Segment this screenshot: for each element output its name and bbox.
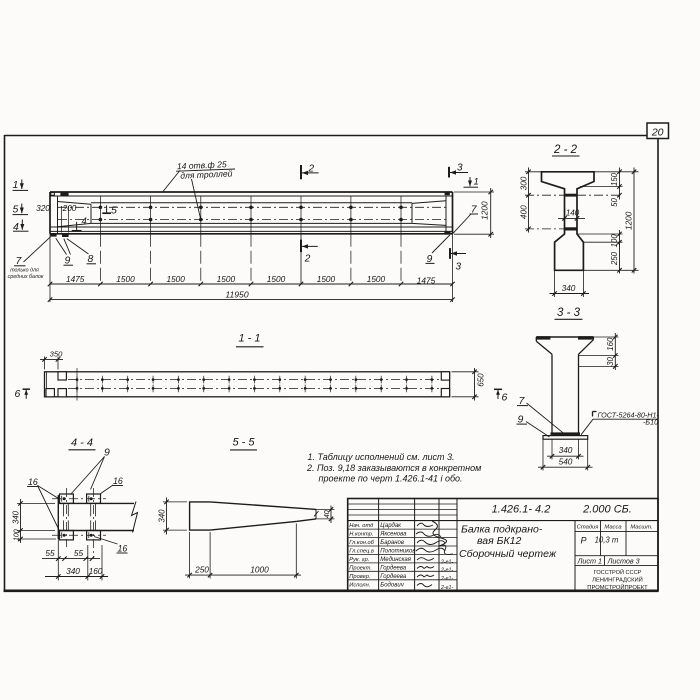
svg-text:540: 540 <box>559 457 573 467</box>
svg-text:40: 40 <box>324 510 331 518</box>
svg-text:Гл.кон.об: Гл.кон.об <box>349 540 374 546</box>
svg-text:Гордеева: Гордеева <box>380 574 407 580</box>
svg-text:350: 350 <box>50 350 63 359</box>
svg-text:вая БК12: вая БК12 <box>477 535 521 547</box>
svg-text:1500: 1500 <box>367 274 386 284</box>
svg-text:160: 160 <box>89 566 103 576</box>
svg-text:340: 340 <box>562 283 576 293</box>
svg-text:1500: 1500 <box>116 274 135 284</box>
svg-text:16: 16 <box>118 544 128 554</box>
svg-text:1.426.1- 4.2: 1.426.1- 4.2 <box>492 503 551 515</box>
svg-text:1 - 1: 1 - 1 <box>238 333 260 345</box>
svg-text:Масса: Масса <box>604 524 622 530</box>
svg-text:3: 3 <box>456 262 462 273</box>
svg-text:1: 1 <box>13 179 19 191</box>
svg-text:6: 6 <box>15 388 21 400</box>
svg-text:2.000 СБ.: 2.000 СБ. <box>582 503 632 515</box>
svg-text:160: 160 <box>606 337 615 351</box>
svg-text:4 - 4: 4 - 4 <box>71 437 93 449</box>
svg-text:50: 50 <box>610 198 619 207</box>
svg-text:Провер.: Провер. <box>349 574 370 580</box>
svg-text:1475: 1475 <box>417 275 436 285</box>
svg-text:5: 5 <box>13 204 19 216</box>
svg-text:2: 2 <box>308 163 315 174</box>
svg-text:Рук. гр.: Рук. гр. <box>349 557 369 563</box>
svg-text:3: 3 <box>457 162 463 173</box>
svg-text:Цардак: Цардак <box>380 523 402 529</box>
svg-text:Проект.: Проект. <box>349 565 372 571</box>
svg-text:1500: 1500 <box>217 274 236 284</box>
svg-text:20: 20 <box>651 126 664 138</box>
svg-text:2-е1-: 2-е1- <box>440 585 453 591</box>
svg-text:100: 100 <box>13 529 20 541</box>
svg-text:Исполн.: Исполн. <box>349 583 370 589</box>
svg-text:4: 4 <box>82 216 87 227</box>
svg-text:1500: 1500 <box>267 274 286 284</box>
svg-text:Масшт.: Масшт. <box>630 524 652 530</box>
svg-text:Стадия: Стадия <box>577 524 599 530</box>
svg-text:400: 400 <box>518 205 528 219</box>
svg-text:2. Поз. 9,18 заказываются в ко: 2. Поз. 9,18 заказываются в конкретном <box>306 463 481 473</box>
svg-text:2-е1-: 2-е1- <box>440 559 453 565</box>
svg-text:1. Таблицу исполнений см. лис: 1. Таблицу исполнений см. лист 3. <box>308 452 455 462</box>
svg-text:340: 340 <box>157 509 166 523</box>
svg-text:ЛЕНИНГРАДСКИЙ: ЛЕНИНГРАДСКИЙ <box>592 576 643 584</box>
svg-text:Балка подкрано-: Балка подкрано- <box>461 523 543 535</box>
svg-text:650: 650 <box>476 373 485 387</box>
svg-text:1475: 1475 <box>66 274 85 284</box>
svg-text:340: 340 <box>11 510 20 524</box>
svg-text:Гл.спец.в: Гл.спец.в <box>349 549 374 555</box>
svg-text:100: 100 <box>610 234 619 248</box>
svg-text:5 - 5: 5 - 5 <box>232 437 255 449</box>
svg-text:Баранов: Баранов <box>380 540 404 546</box>
svg-text:1200: 1200 <box>624 211 634 230</box>
svg-text:проекте по черт 1.426.1-41 i: проекте по черт 1.426.1-41 i обо. <box>319 474 463 484</box>
svg-text:10,3 т: 10,3 т <box>595 536 619 545</box>
svg-text:250: 250 <box>610 251 619 266</box>
svg-text:ГОССТРОЙ СССР: ГОССТРОЙ СССР <box>594 568 642 576</box>
svg-text:340: 340 <box>66 566 80 576</box>
svg-text:250: 250 <box>194 564 209 574</box>
svg-text:7: 7 <box>519 395 526 407</box>
svg-text:300: 300 <box>518 176 528 190</box>
svg-text:1500: 1500 <box>166 274 185 284</box>
svg-text:11950: 11950 <box>225 289 248 299</box>
svg-text:340: 340 <box>559 445 573 455</box>
svg-text:Яксенова: Яксенова <box>379 532 407 538</box>
svg-text:2-е1-: 2-е1- <box>440 576 453 582</box>
svg-text:7: 7 <box>16 255 23 267</box>
svg-text:200: 200 <box>62 203 77 213</box>
svg-text:Гордеева: Гордеева <box>380 565 407 571</box>
svg-text:Сборочный чертеж: Сборочный чертеж <box>459 548 557 560</box>
svg-text:55: 55 <box>74 548 84 558</box>
svg-text:2: 2 <box>304 254 311 265</box>
svg-text:150: 150 <box>610 172 619 186</box>
svg-text:1000: 1000 <box>250 564 269 574</box>
svg-text:55: 55 <box>45 548 55 558</box>
svg-text:16: 16 <box>28 477 38 487</box>
svg-text:1: 1 <box>474 177 479 188</box>
svg-text:средних балок: средних балок <box>8 274 44 280</box>
svg-text:140: 140 <box>566 208 580 217</box>
svg-text:6: 6 <box>502 391 508 403</box>
svg-text:2 - 2: 2 - 2 <box>553 144 578 156</box>
svg-text:1500: 1500 <box>317 274 336 284</box>
svg-text:только для: только для <box>10 268 39 274</box>
svg-text:Бодович: Бодович <box>380 583 403 589</box>
svg-text:ПРОМСТРОЙПРОЕКТ: ПРОМСТРОЙПРОЕКТ <box>587 583 648 591</box>
svg-text:320: 320 <box>36 203 50 213</box>
svg-text:Р: Р <box>580 536 586 546</box>
svg-text:Лист 1: Лист 1 <box>577 556 603 565</box>
svg-text:Нач. отд: Нач. отд <box>349 523 373 529</box>
svg-text:3 - 3: 3 - 3 <box>557 307 581 319</box>
svg-text:2-е1-: 2-е1- <box>440 568 453 574</box>
svg-text:Полотников: Полотников <box>380 549 415 555</box>
svg-text:16: 16 <box>113 476 123 486</box>
svg-text:9: 9 <box>518 413 524 425</box>
svg-text:8: 8 <box>88 253 94 265</box>
svg-text:Н.контр.: Н.контр. <box>349 532 373 538</box>
svg-text:5: 5 <box>111 204 117 216</box>
svg-text:30: 30 <box>606 357 615 366</box>
svg-text:Листов 3: Листов 3 <box>607 556 640 565</box>
svg-text:1200: 1200 <box>480 201 490 220</box>
svg-text:Мединская: Мединская <box>380 557 411 563</box>
